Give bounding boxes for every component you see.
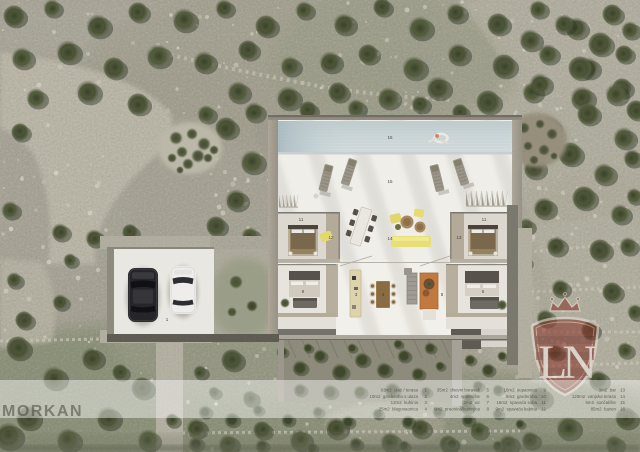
svg-text:9m2 spavaća kabina: 9m2 spavaća kabina xyxy=(496,406,538,411)
svg-text:6m2 sunčalište: 6m2 sunčalište xyxy=(585,400,616,405)
svg-text:14: 14 xyxy=(620,394,625,399)
svg-text:10m2 garderoba s ulaza: 10m2 garderoba s ulaza xyxy=(369,394,418,399)
svg-text:3m2 bar: 3m2 bar xyxy=(599,388,617,393)
svg-text:5m2 garderoba: 5m2 garderoba xyxy=(506,394,538,399)
svg-text:6m2 praonica/kuhinjica: 6m2 praonica/kuhinjica xyxy=(434,406,481,411)
svg-text:63m2 ulaz / terasa: 63m2 ulaz / terasa xyxy=(381,388,419,393)
svg-text:16: 16 xyxy=(620,406,625,411)
svg-text:11: 11 xyxy=(482,217,487,222)
svg-text:12: 12 xyxy=(328,235,334,240)
svg-text:120m2 vanjska terasa: 120m2 vanjska terasa xyxy=(572,394,617,399)
svg-text:11: 11 xyxy=(299,217,304,222)
svg-text:11: 11 xyxy=(541,400,546,405)
svg-text:2m2 wc: 2m2 wc xyxy=(464,400,481,405)
svg-text:16: 16 xyxy=(387,135,393,140)
svg-text:15: 15 xyxy=(387,179,393,184)
svg-text:MORKAN: MORKAN xyxy=(2,403,83,420)
svg-text:15: 15 xyxy=(620,400,625,405)
svg-text:10: 10 xyxy=(541,394,546,399)
svg-text:13: 13 xyxy=(456,235,462,240)
svg-text:12m2 kuhinja: 12m2 kuhinja xyxy=(391,400,419,405)
svg-text:12: 12 xyxy=(541,406,546,411)
svg-text:16m2 spavaća soba: 16m2 spavaća soba xyxy=(496,400,537,405)
svg-text:35m2 dnevni boravak: 35m2 dnevni boravak xyxy=(437,388,481,393)
svg-text:13: 13 xyxy=(620,388,625,393)
svg-text:14: 14 xyxy=(387,236,393,241)
svg-text:85m2 bazen: 85m2 bazen xyxy=(591,406,617,411)
svg-text:4m2 spremište: 4m2 spremište xyxy=(450,394,481,399)
svg-text:25m2 blagovaonica: 25m2 blagovaonica xyxy=(379,406,419,411)
svg-text:16m2 kupaonica: 16m2 kupaonica xyxy=(504,388,538,393)
